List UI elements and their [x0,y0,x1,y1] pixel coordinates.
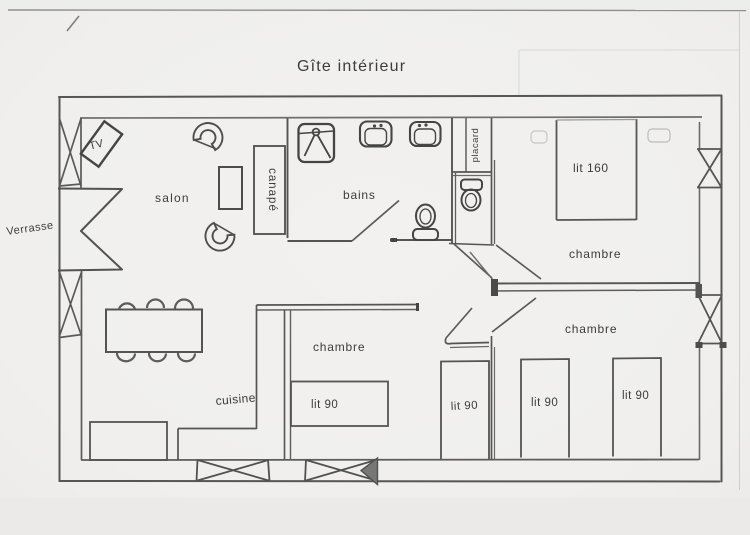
svg-text:lit 160: lit 160 [573,161,609,175]
svg-text:salon: salon [155,191,190,205]
svg-text:chambre: chambre [565,322,617,336]
svg-text:canapé: canapé [266,168,278,212]
svg-text:lit 90: lit 90 [531,397,558,409]
svg-text:lit 90: lit 90 [622,390,649,402]
svg-text:chambre: chambre [569,247,621,261]
svg-text:placard: placard [470,128,481,163]
svg-text:lit 90: lit 90 [451,400,479,413]
svg-text:chambre: chambre [313,340,365,354]
svg-text:lit 90: lit 90 [311,399,338,411]
svg-text:Gîte intérieur: Gîte intérieur [297,58,406,75]
svg-text:bains: bains [343,188,376,202]
